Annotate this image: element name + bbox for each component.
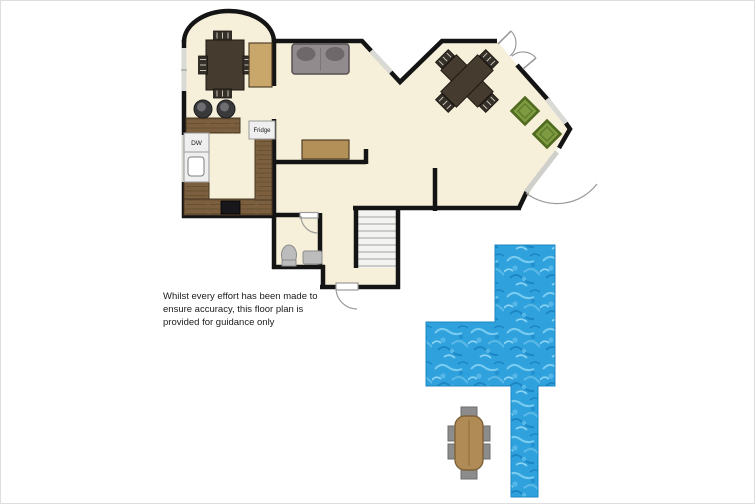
dishwasher-label: DW: [191, 140, 203, 147]
fridge-icon: Fridge: [249, 121, 275, 139]
floor-plan-page: DW Fridge: [0, 0, 755, 504]
outdoor-dining-set: [448, 407, 490, 479]
sofa-icon: [292, 44, 349, 74]
sideboard-icon: [302, 140, 349, 159]
floor-plan-drawing: DW Fridge: [0, 0, 755, 504]
sink-icon: [184, 152, 209, 182]
basin-icon: [303, 251, 322, 264]
tall-cabinet-icon: [249, 43, 272, 87]
bar-stool-icon: [194, 100, 212, 118]
disclaimer-line: Whilst every effort has been made to: [163, 290, 393, 303]
bar-stool-icon: [217, 100, 235, 118]
toilet-icon: [282, 245, 297, 266]
disclaimer-line: ensure accuracy, this floor plan is: [163, 303, 393, 316]
fridge-label: Fridge: [253, 128, 271, 134]
stove-icon: [221, 201, 240, 214]
disclaimer-line: provided for guidance only: [163, 316, 393, 329]
dining-table-icon: [199, 31, 253, 98]
dishwasher-icon: DW: [184, 133, 209, 152]
breakfast-bar-icon: [186, 118, 240, 133]
staircase: [357, 210, 397, 268]
disclaimer-text: Whilst every effort has been made to ens…: [163, 290, 393, 329]
counter-right-icon: [255, 137, 272, 200]
